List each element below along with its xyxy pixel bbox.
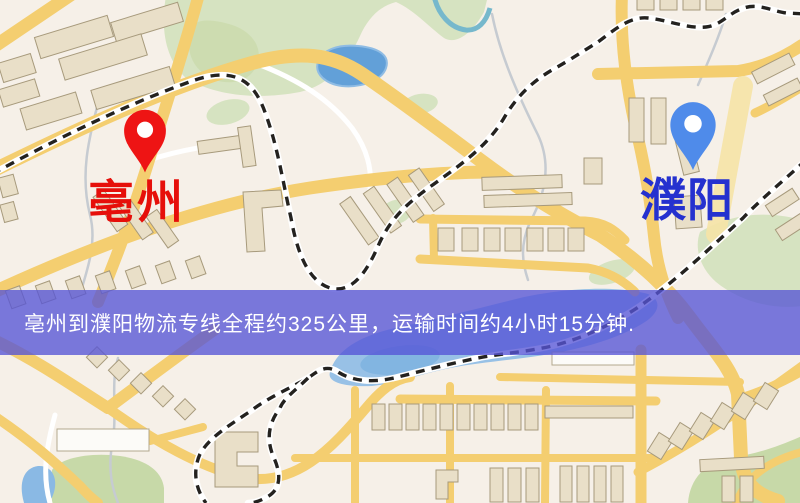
destination-label: 濮阳 [640,177,734,223]
route-info-banner: 亳州到濮阳物流专线全程约325公里，运输时间约4小时15分钟. [0,290,800,355]
map-screenshot: 亳州 濮阳 亳州到濮阳物流专线全程约325公里，运输时间约4小时15分钟. [0,0,800,503]
route-info-text: 亳州到濮阳物流专线全程约325公里，运输时间约4小时15分钟. [0,308,635,338]
map-canvas[interactable] [0,0,800,503]
origin-label: 亳州 [88,179,186,225]
